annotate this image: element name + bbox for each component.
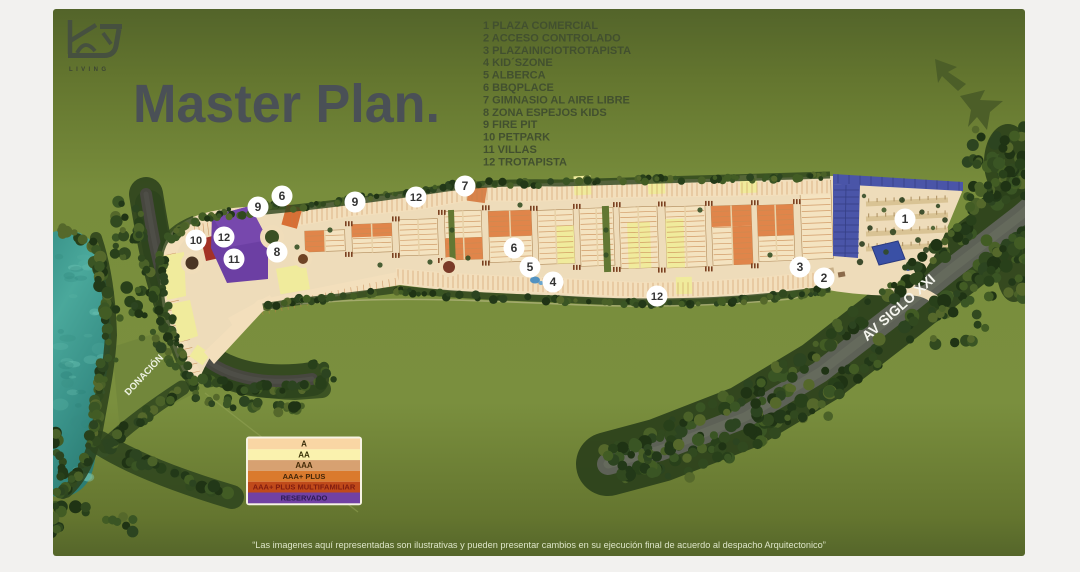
svg-text:3 PLAZAINICIOTROTAPISTA: 3 PLAZAINICIOTROTAPISTA <box>483 45 631 57</box>
svg-text:10 PETPARK: 10 PETPARK <box>483 132 550 144</box>
svg-text:Master Plan.: Master Plan. <box>133 74 440 134</box>
svg-text:5: 5 <box>527 260 534 274</box>
svg-text:AA: AA <box>298 450 310 459</box>
svg-text:12 TROTAPISTA: 12 TROTAPISTA <box>483 156 567 168</box>
svg-text:LIVING: LIVING <box>69 67 109 73</box>
svg-text:3: 3 <box>797 260 804 274</box>
svg-text:8: 8 <box>274 245 281 259</box>
svg-text:5 ALBERCA: 5 ALBERCA <box>483 70 546 82</box>
svg-text:RESERVADO: RESERVADO <box>281 494 328 503</box>
svg-text:7: 7 <box>462 179 469 193</box>
svg-text:6 BBQPLACE: 6 BBQPLACE <box>483 82 554 94</box>
svg-text:11: 11 <box>228 254 240 266</box>
svg-text:9: 9 <box>255 200 262 214</box>
svg-text:9: 9 <box>352 195 359 209</box>
svg-text:10: 10 <box>190 235 202 247</box>
svg-text:A: A <box>301 440 307 449</box>
svg-text:11 VILLAS: 11 VILLAS <box>483 144 537 156</box>
svg-text:1 PLAZA COMERCIAL: 1 PLAZA COMERCIAL <box>483 20 598 32</box>
svg-text:2: 2 <box>821 271 828 285</box>
svg-text:“Las imagenes aquí representad: “Las imagenes aquí representadas son ilu… <box>252 540 826 550</box>
svg-text:6: 6 <box>511 241 518 255</box>
svg-text:9 FIRE PIT: 9 FIRE PIT <box>483 119 538 131</box>
svg-text:1: 1 <box>902 212 909 226</box>
svg-text:AAA+ PLUS: AAA+ PLUS <box>283 472 326 481</box>
svg-text:12: 12 <box>651 291 663 303</box>
svg-text:2 ACCESO CONTROLADO: 2 ACCESO CONTROLADO <box>483 32 621 44</box>
svg-text:8 ZONA ESPEJOS KIDS: 8 ZONA ESPEJOS KIDS <box>483 107 607 119</box>
svg-text:12: 12 <box>218 232 230 244</box>
svg-text:4: 4 <box>550 275 557 289</box>
svg-text:12: 12 <box>410 192 422 204</box>
svg-text:4 KID´SZONE: 4 KID´SZONE <box>483 57 553 69</box>
svg-text:7 GIMNASIO AL AIRE LIBRE: 7 GIMNASIO AL AIRE LIBRE <box>483 94 630 106</box>
svg-text:AAA: AAA <box>295 461 313 470</box>
svg-text:6: 6 <box>279 189 286 203</box>
svg-text:AAA+ PLUS MULTIFAMILIAR: AAA+ PLUS MULTIFAMILIAR <box>253 483 356 492</box>
